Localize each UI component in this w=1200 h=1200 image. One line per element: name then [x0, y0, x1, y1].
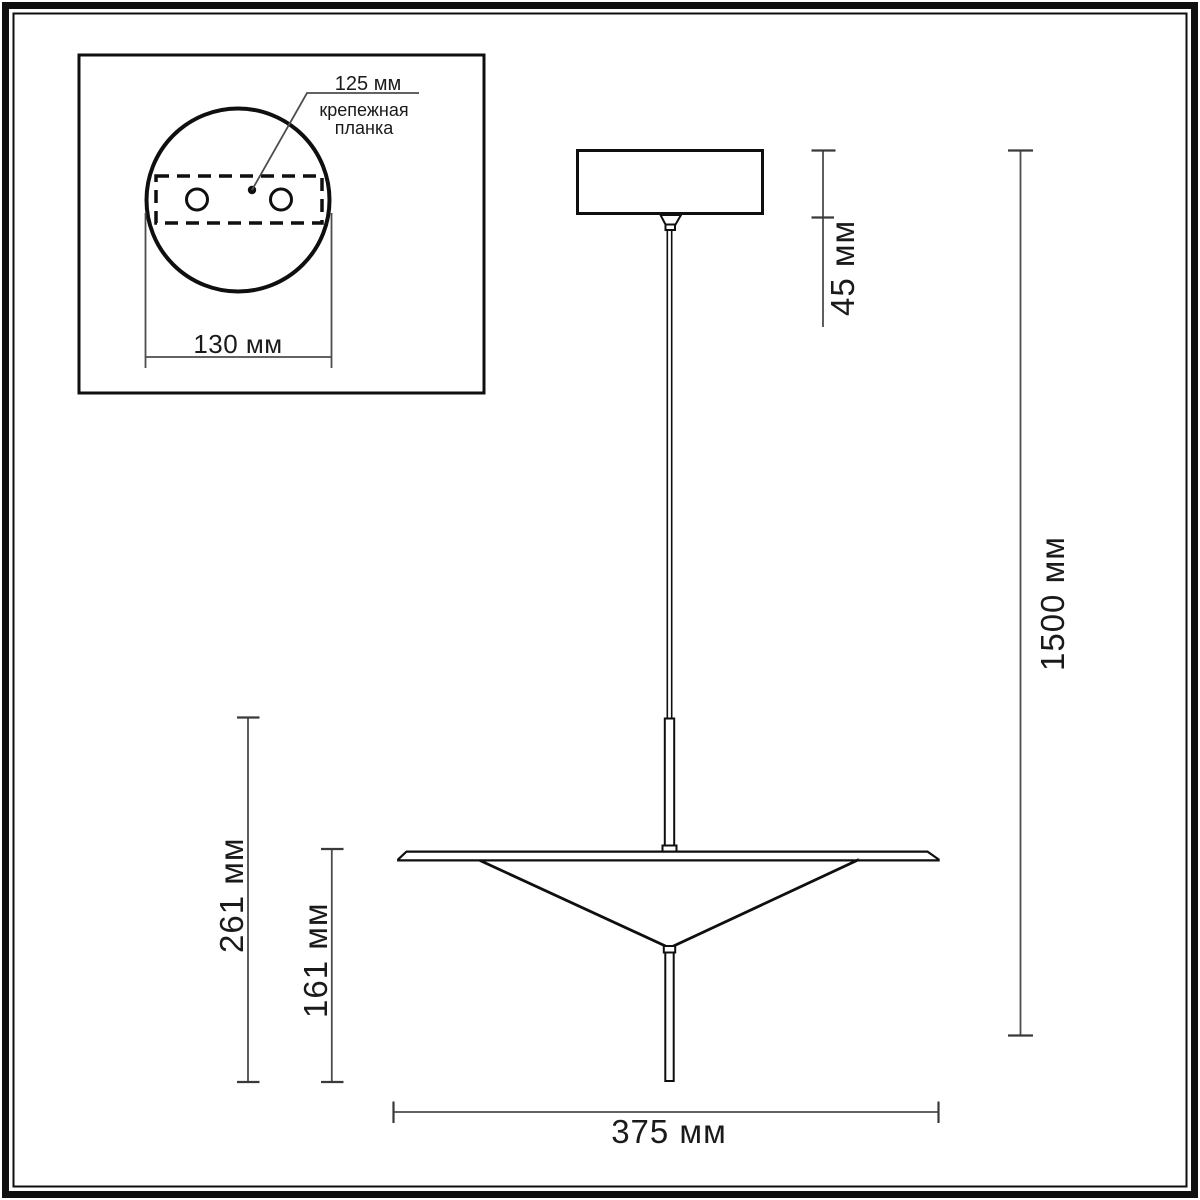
- canopy: [578, 151, 763, 214]
- canopy-cable-nub: [666, 225, 676, 231]
- mount-base-circle: [147, 109, 330, 292]
- label-shade-height: 161 мм: [297, 902, 334, 1018]
- label-mounting-plate-line2: планка: [335, 118, 394, 138]
- lower-stem: [665, 953, 673, 1082]
- label-mounting-plate-line1: крепежная: [319, 100, 408, 120]
- label-canopy-height: 45 мм: [824, 220, 861, 316]
- label-shade-width: 375 мм: [611, 1113, 727, 1150]
- drawing-page: 125 мм крепежная планка 130 мм 45 мм 150…: [0, 0, 1200, 1200]
- mount-hole-right: [271, 189, 292, 210]
- mounting-plate-dashed-outline: [156, 176, 322, 223]
- upper-stem: [665, 719, 674, 847]
- label-base-width: 130 мм: [193, 329, 282, 359]
- mount-hole-left: [187, 189, 208, 210]
- label-plate-width: 125 мм: [335, 73, 401, 95]
- dimension-drawing-canvas: 125 мм крепежная планка 130 мм 45 мм 150…: [0, 0, 1200, 1200]
- shade-cone-right-edge: [673, 860, 860, 947]
- canopy-cable-gland: [661, 215, 682, 225]
- label-total-height: 1500 мм: [1034, 536, 1071, 671]
- label-stem-shade-height: 261 мм: [213, 837, 250, 953]
- shade-cone-left-edge: [480, 861, 667, 947]
